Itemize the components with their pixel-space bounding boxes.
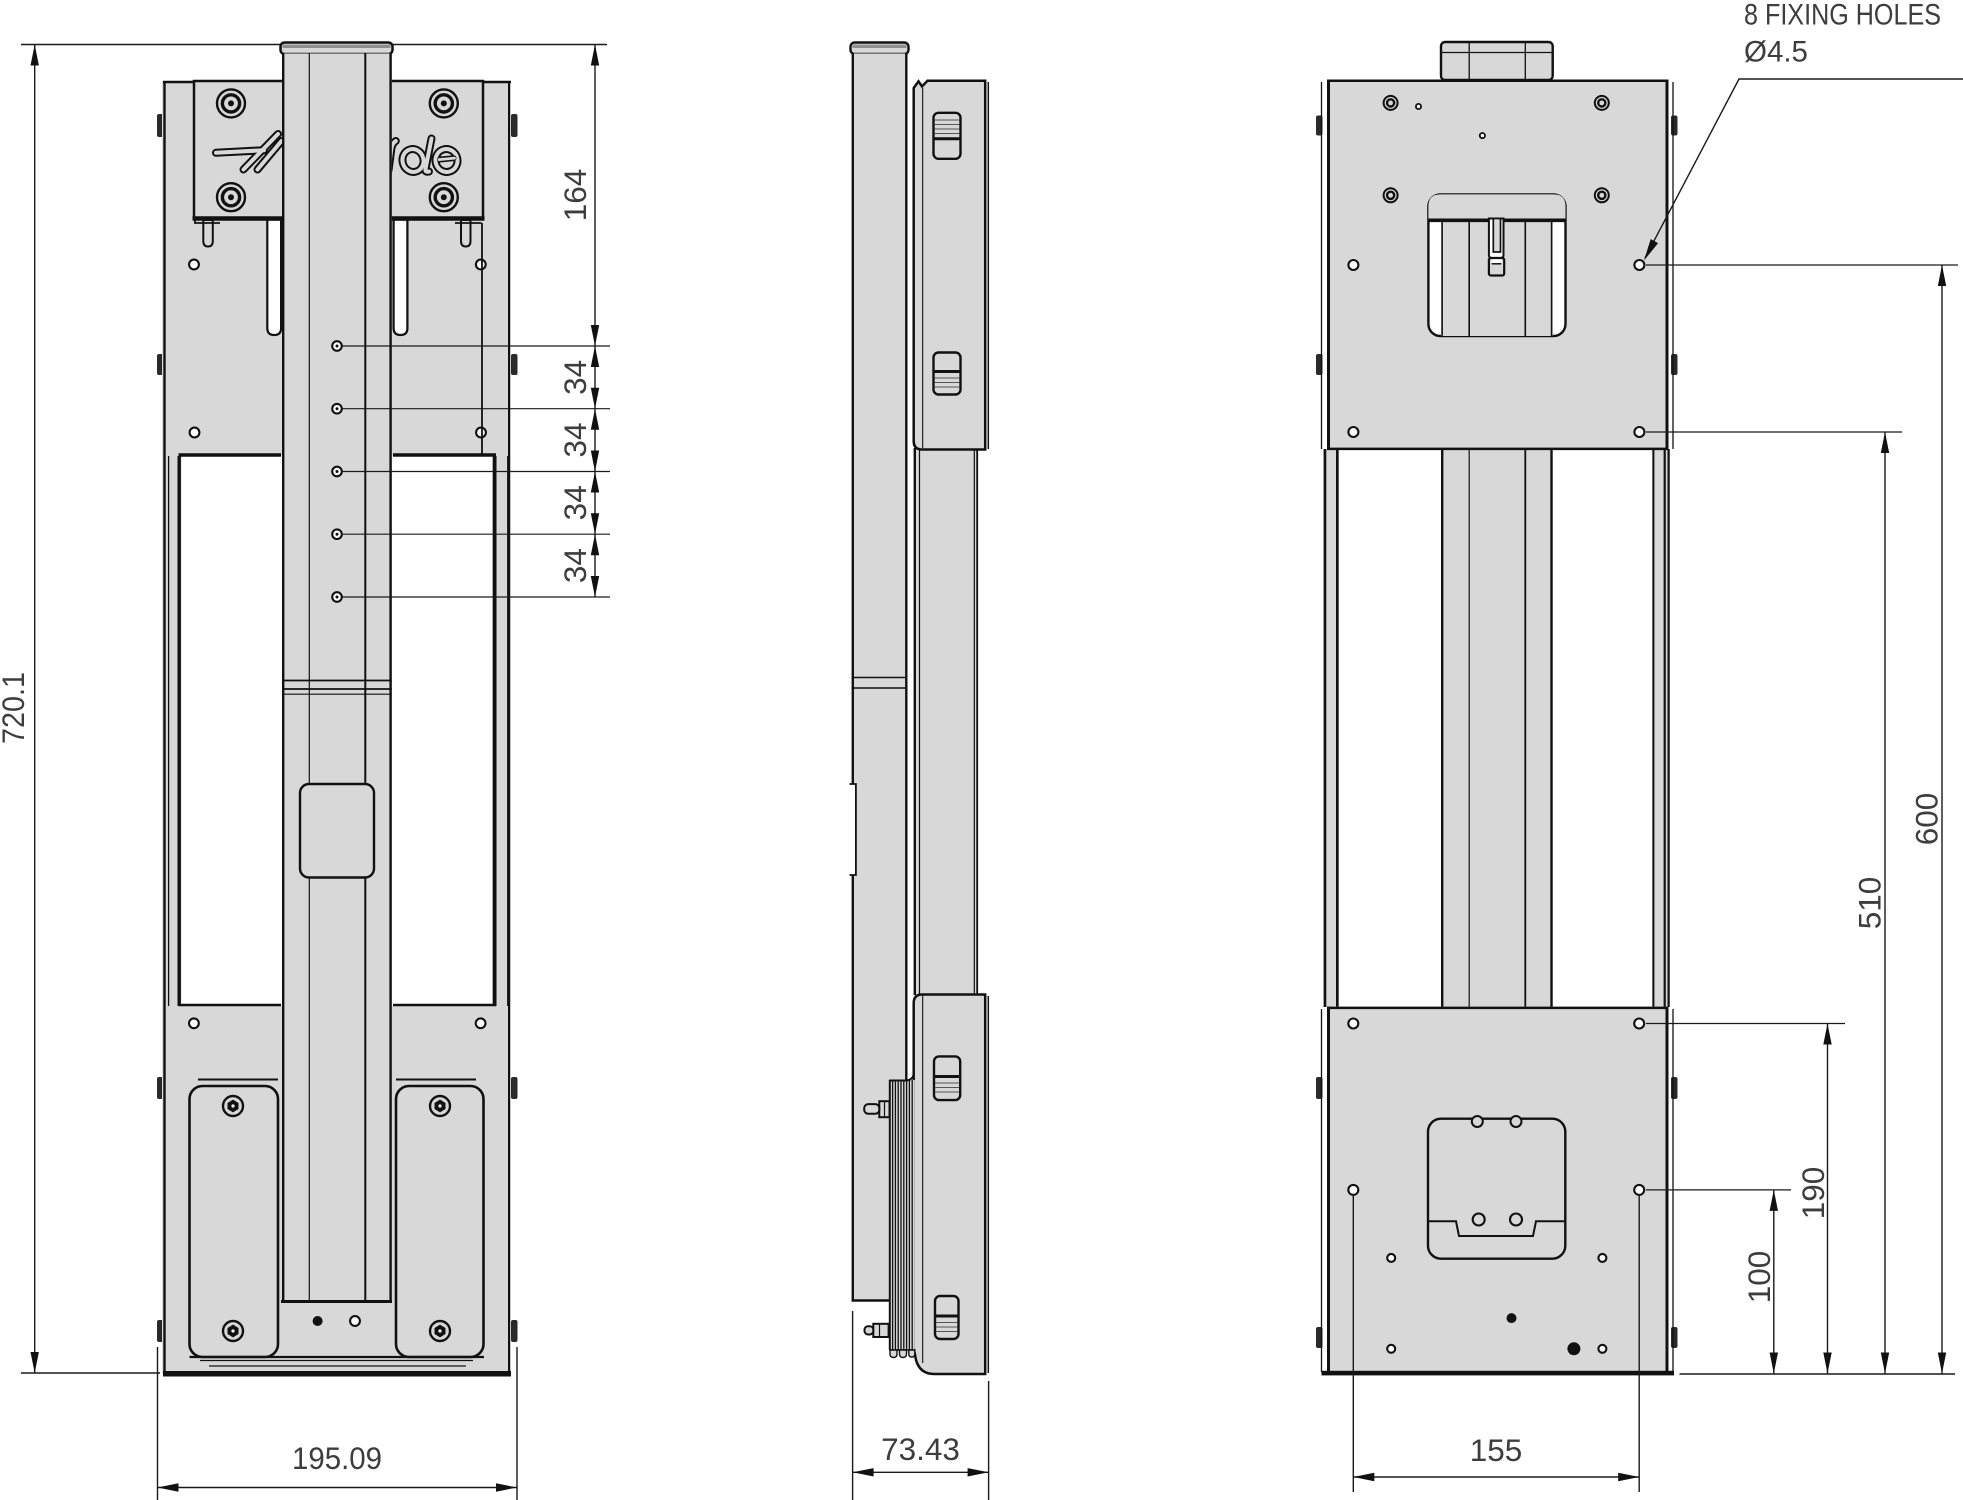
svg-text:73.43: 73.43 — [881, 1431, 960, 1467]
svg-text:34: 34 — [557, 360, 593, 395]
svg-text:Ø4.5: Ø4.5 — [1744, 36, 1808, 69]
svg-text:155: 155 — [1470, 1432, 1523, 1468]
svg-text:8 FIXING HOLES: 8 FIXING HOLES — [1744, 0, 1941, 32]
svg-text:510: 510 — [1852, 877, 1888, 930]
svg-text:720.1: 720.1 — [0, 672, 31, 744]
svg-text:34: 34 — [557, 422, 593, 457]
svg-text:164: 164 — [557, 169, 593, 222]
svg-text:195.09: 195.09 — [292, 1440, 382, 1476]
svg-text:190: 190 — [1795, 1167, 1831, 1220]
svg-text:34: 34 — [557, 548, 593, 583]
svg-text:600: 600 — [1909, 793, 1945, 846]
svg-text:100: 100 — [1741, 1251, 1777, 1304]
svg-text:34: 34 — [557, 485, 593, 520]
